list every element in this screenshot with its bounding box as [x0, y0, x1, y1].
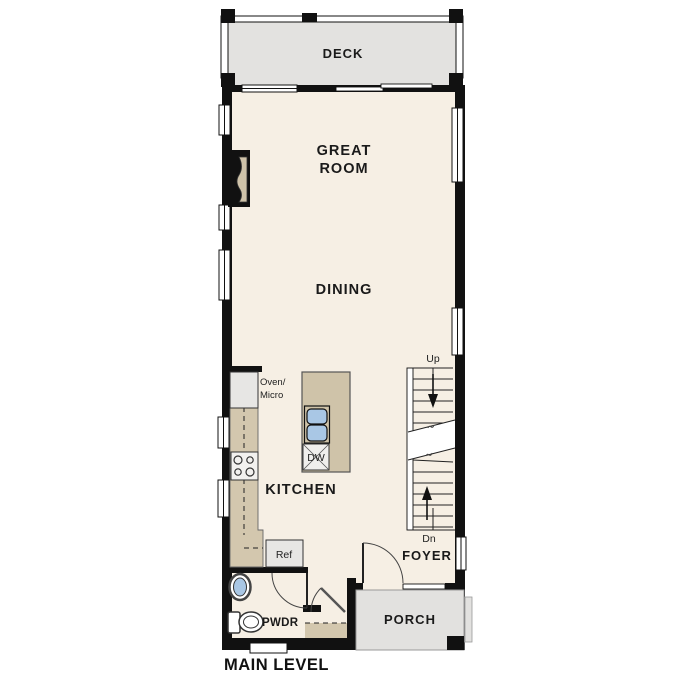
entry-step — [250, 643, 287, 653]
dining-label: DINING — [316, 282, 373, 298]
kitchen-label: KITCHEN — [265, 482, 336, 498]
great-room-label-2: ROOM — [319, 161, 368, 177]
toilet — [228, 612, 263, 633]
porch-side-step — [465, 597, 472, 642]
kitchen-wall-stub — [228, 366, 262, 372]
deck-window — [242, 85, 297, 92]
stairs-up-label: Up — [426, 353, 440, 365]
great-room-label-1: GREAT — [317, 143, 372, 159]
floor-plan-drawing: DECK — [0, 0, 687, 687]
porch-post — [447, 636, 464, 650]
closet-shelf — [305, 623, 347, 638]
cooktop — [231, 452, 258, 480]
foyer-label: FOYER — [402, 548, 452, 563]
oven-micro — [230, 372, 258, 408]
plan-title: MAIN LEVEL — [224, 656, 329, 674]
oven-micro-label-2: Micro — [260, 390, 283, 401]
powder-label: PWDR — [262, 617, 299, 629]
refrigerator-label: Ref — [276, 549, 292, 561]
stairs-down-label: Dn — [422, 533, 436, 545]
oven-micro-label-1: Oven/ — [260, 377, 286, 388]
powder-sink — [230, 574, 251, 600]
deck-label: DECK — [323, 46, 364, 61]
dishwasher-label: DW — [307, 452, 325, 464]
porch-label: PORCH — [384, 612, 436, 627]
front-sidelite-window — [403, 584, 445, 589]
floor-plan-canvas: DECK — [0, 0, 687, 687]
